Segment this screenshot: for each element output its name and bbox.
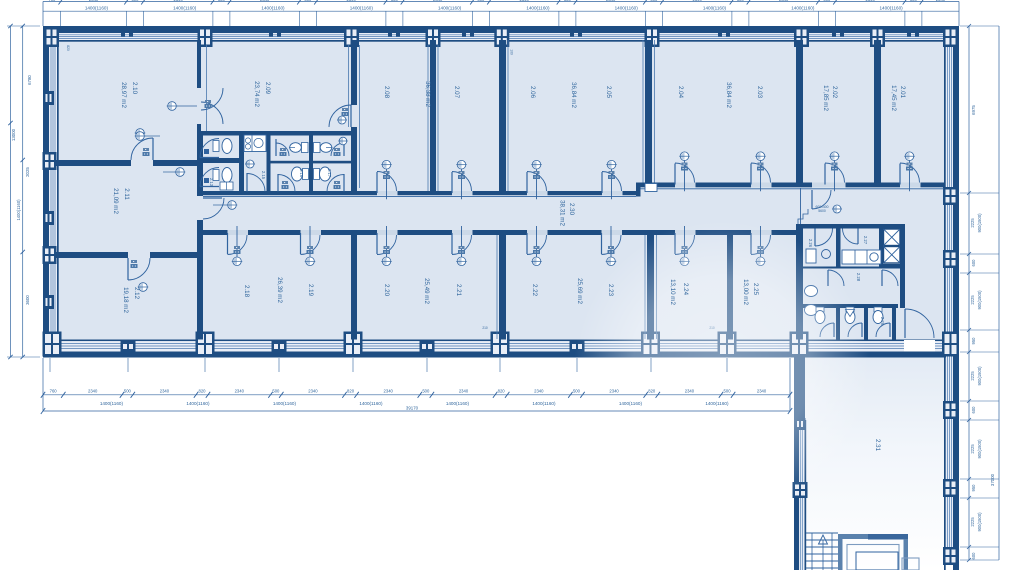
- svg-text:760: 760: [50, 389, 58, 394]
- svg-text:1400(1160): 1400(1160): [705, 401, 729, 406]
- svg-text:1400(1160): 1400(1160): [880, 5, 904, 10]
- svg-text:2340: 2340: [260, 0, 270, 2]
- svg-text:2340: 2340: [308, 389, 318, 394]
- svg-text:2.08: 2.08: [383, 86, 390, 99]
- svg-text:1400(1160): 1400(1160): [619, 401, 643, 406]
- svg-text:37000: 37000: [990, 473, 995, 486]
- svg-text:13000: 13000: [11, 128, 16, 141]
- svg-text:500: 500: [650, 0, 658, 2]
- svg-text:2225: 2225: [970, 218, 975, 228]
- svg-text:2.15: 2.15: [261, 171, 266, 180]
- svg-text:2.27: 2.27: [863, 236, 868, 245]
- svg-text:1400(1160): 1400(1160): [186, 401, 210, 406]
- svg-text:820: 820: [66, 45, 70, 51]
- svg-text:39170: 39170: [406, 405, 419, 410]
- svg-text:2.18: 2.18: [243, 285, 250, 298]
- svg-text:17,45 m2: 17,45 m2: [890, 85, 897, 111]
- svg-text:2225: 2225: [970, 295, 975, 305]
- svg-text:2.28: 2.28: [856, 273, 861, 282]
- svg-text:2.09: 2.09: [264, 82, 271, 95]
- svg-text:500: 500: [272, 389, 280, 394]
- svg-text:2340: 2340: [779, 0, 789, 2]
- svg-text:2.17: 2.17: [327, 169, 332, 178]
- svg-text:1400(1160): 1400(1160): [350, 5, 374, 10]
- svg-text:1400(1160): 1400(1160): [359, 401, 383, 406]
- svg-text:2.21: 2.21: [455, 284, 462, 297]
- svg-text:2225: 2225: [970, 371, 975, 381]
- svg-text:500: 500: [124, 389, 132, 394]
- svg-text:2.31: 2.31: [874, 439, 881, 452]
- svg-text:2340: 2340: [88, 389, 98, 394]
- svg-text:600: 600: [971, 406, 976, 414]
- svg-text:950: 950: [971, 337, 976, 345]
- svg-text:1400(1160): 1400(1160): [273, 401, 297, 406]
- svg-text:1400(1160): 1400(1160): [526, 5, 550, 10]
- svg-text:2340: 2340: [757, 389, 767, 394]
- svg-text:1400(1160): 1400(1160): [532, 401, 556, 406]
- svg-text:1400(1160): 1400(1160): [615, 5, 639, 10]
- svg-text:900(1500): 900(1500): [977, 512, 982, 532]
- svg-text:2.30: 2.30: [568, 203, 575, 216]
- svg-text:2340: 2340: [89, 0, 99, 2]
- svg-text:1400(1160): 1400(1160): [173, 5, 197, 10]
- svg-text:1400(1160): 1400(1160): [85, 5, 109, 10]
- svg-text:25,49 m2: 25,49 m2: [423, 278, 430, 304]
- svg-text:2340: 2340: [692, 0, 702, 2]
- svg-text:2340: 2340: [936, 0, 946, 2]
- svg-text:2340: 2340: [534, 389, 544, 394]
- svg-text:2.26: 2.26: [808, 239, 813, 248]
- svg-text:820: 820: [737, 0, 745, 2]
- svg-text:28,97 m2: 28,97 m2: [120, 82, 127, 108]
- svg-text:820: 820: [347, 389, 355, 394]
- svg-text:2340: 2340: [433, 0, 443, 2]
- svg-text:2.16: 2.16: [299, 169, 304, 178]
- svg-text:2.23: 2.23: [607, 284, 614, 297]
- svg-text:2025: 2025: [25, 167, 30, 177]
- svg-text:500: 500: [422, 389, 430, 394]
- svg-text:1400(1160): 1400(1160): [791, 5, 815, 10]
- svg-text:500: 500: [477, 0, 485, 2]
- svg-text:1400(1160): 1400(1160): [261, 5, 285, 10]
- svg-text:2225: 2225: [970, 517, 975, 527]
- svg-text:2.10: 2.10: [131, 82, 138, 95]
- svg-text:26,39 m2: 26,39 m2: [276, 277, 283, 303]
- svg-text:5600: 5600: [818, 209, 826, 213]
- svg-text:2.06: 2.06: [529, 86, 536, 99]
- svg-text:2.25: 2.25: [752, 283, 759, 296]
- svg-text:600: 600: [971, 259, 976, 267]
- svg-text:900(1500): 900(1500): [977, 213, 982, 233]
- svg-text:19,18 m2: 19,18 m2: [122, 287, 129, 313]
- svg-text:820: 820: [199, 389, 207, 394]
- svg-text:820: 820: [648, 389, 656, 394]
- svg-text:2.11: 2.11: [123, 188, 130, 200]
- svg-text:820: 820: [564, 0, 572, 2]
- svg-text:500: 500: [724, 389, 732, 394]
- svg-text:1400(1160): 1400(1160): [438, 5, 462, 10]
- svg-text:820: 820: [391, 0, 399, 2]
- svg-text:1400(1160): 1400(1160): [16, 199, 21, 221]
- svg-text:21,09 m2: 21,09 m2: [112, 188, 119, 214]
- svg-text:2.29: 2.29: [880, 317, 885, 326]
- svg-text:2225: 2225: [970, 444, 975, 454]
- svg-text:500: 500: [573, 389, 581, 394]
- svg-text:2.03: 2.03: [756, 86, 763, 99]
- svg-text:2340: 2340: [865, 0, 875, 2]
- svg-text:36,84 m2: 36,84 m2: [570, 82, 577, 108]
- svg-text:6975: 6975: [971, 105, 976, 115]
- svg-text:2.04: 2.04: [677, 86, 684, 99]
- svg-text:820: 820: [218, 0, 226, 2]
- svg-text:760: 760: [48, 0, 56, 2]
- svg-text:2340: 2340: [235, 389, 245, 394]
- svg-text:600: 600: [971, 552, 976, 560]
- svg-text:38,31 m2: 38,31 m2: [559, 200, 566, 226]
- svg-text:820: 820: [910, 0, 918, 2]
- svg-text:6780: 6780: [27, 75, 32, 85]
- svg-text:900(1500): 900(1500): [977, 439, 982, 459]
- svg-text:23,74 m2: 23,74 m2: [253, 81, 260, 107]
- svg-text:2.20: 2.20: [383, 284, 390, 297]
- svg-text:2340: 2340: [685, 389, 695, 394]
- svg-text:2.22: 2.22: [531, 284, 538, 297]
- svg-text:950: 950: [971, 484, 976, 492]
- svg-text:210: 210: [482, 326, 488, 330]
- svg-text:820: 820: [498, 389, 506, 394]
- svg-text:36,38 m2: 36,38 m2: [424, 81, 431, 107]
- svg-text:2.02: 2.02: [831, 86, 838, 99]
- svg-text:1400(1160): 1400(1160): [100, 401, 124, 406]
- svg-text:2.19: 2.19: [307, 284, 314, 297]
- svg-text:17,85 m2: 17,85 m2: [822, 85, 829, 111]
- svg-text:1400(1160): 1400(1160): [446, 401, 470, 406]
- svg-text:500: 500: [131, 0, 139, 2]
- svg-text:2.07: 2.07: [453, 86, 460, 99]
- svg-text:2.24: 2.24: [682, 283, 689, 296]
- svg-text:2340: 2340: [346, 0, 356, 2]
- svg-text:3600: 3600: [25, 295, 30, 305]
- svg-text:2340: 2340: [609, 389, 619, 394]
- svg-text:2340: 2340: [160, 389, 170, 394]
- svg-text:900(1500): 900(1500): [977, 366, 982, 386]
- svg-text:2340: 2340: [384, 389, 394, 394]
- svg-text:13,00 m2: 13,00 m2: [742, 279, 749, 305]
- svg-text:2340: 2340: [459, 389, 469, 394]
- svg-text:500: 500: [823, 0, 831, 2]
- svg-text:100: 100: [510, 49, 514, 55]
- svg-text:2340: 2340: [606, 0, 616, 2]
- svg-text:500: 500: [304, 0, 312, 2]
- svg-text:2340: 2340: [173, 0, 183, 2]
- svg-text:13,10 m2: 13,10 m2: [669, 279, 676, 305]
- svg-text:2.01: 2.01: [899, 86, 906, 99]
- svg-text:36,84 m2: 36,84 m2: [725, 82, 732, 108]
- svg-text:900(1500): 900(1500): [977, 290, 982, 310]
- svg-text:2.05: 2.05: [605, 86, 612, 99]
- svg-text:2.13: 2.13: [209, 178, 214, 187]
- svg-text:2.12: 2.12: [133, 287, 140, 300]
- svg-text:2340: 2340: [519, 0, 529, 2]
- svg-text:25,69 m2: 25,69 m2: [576, 278, 583, 304]
- svg-text:1400(1160): 1400(1160): [703, 5, 727, 10]
